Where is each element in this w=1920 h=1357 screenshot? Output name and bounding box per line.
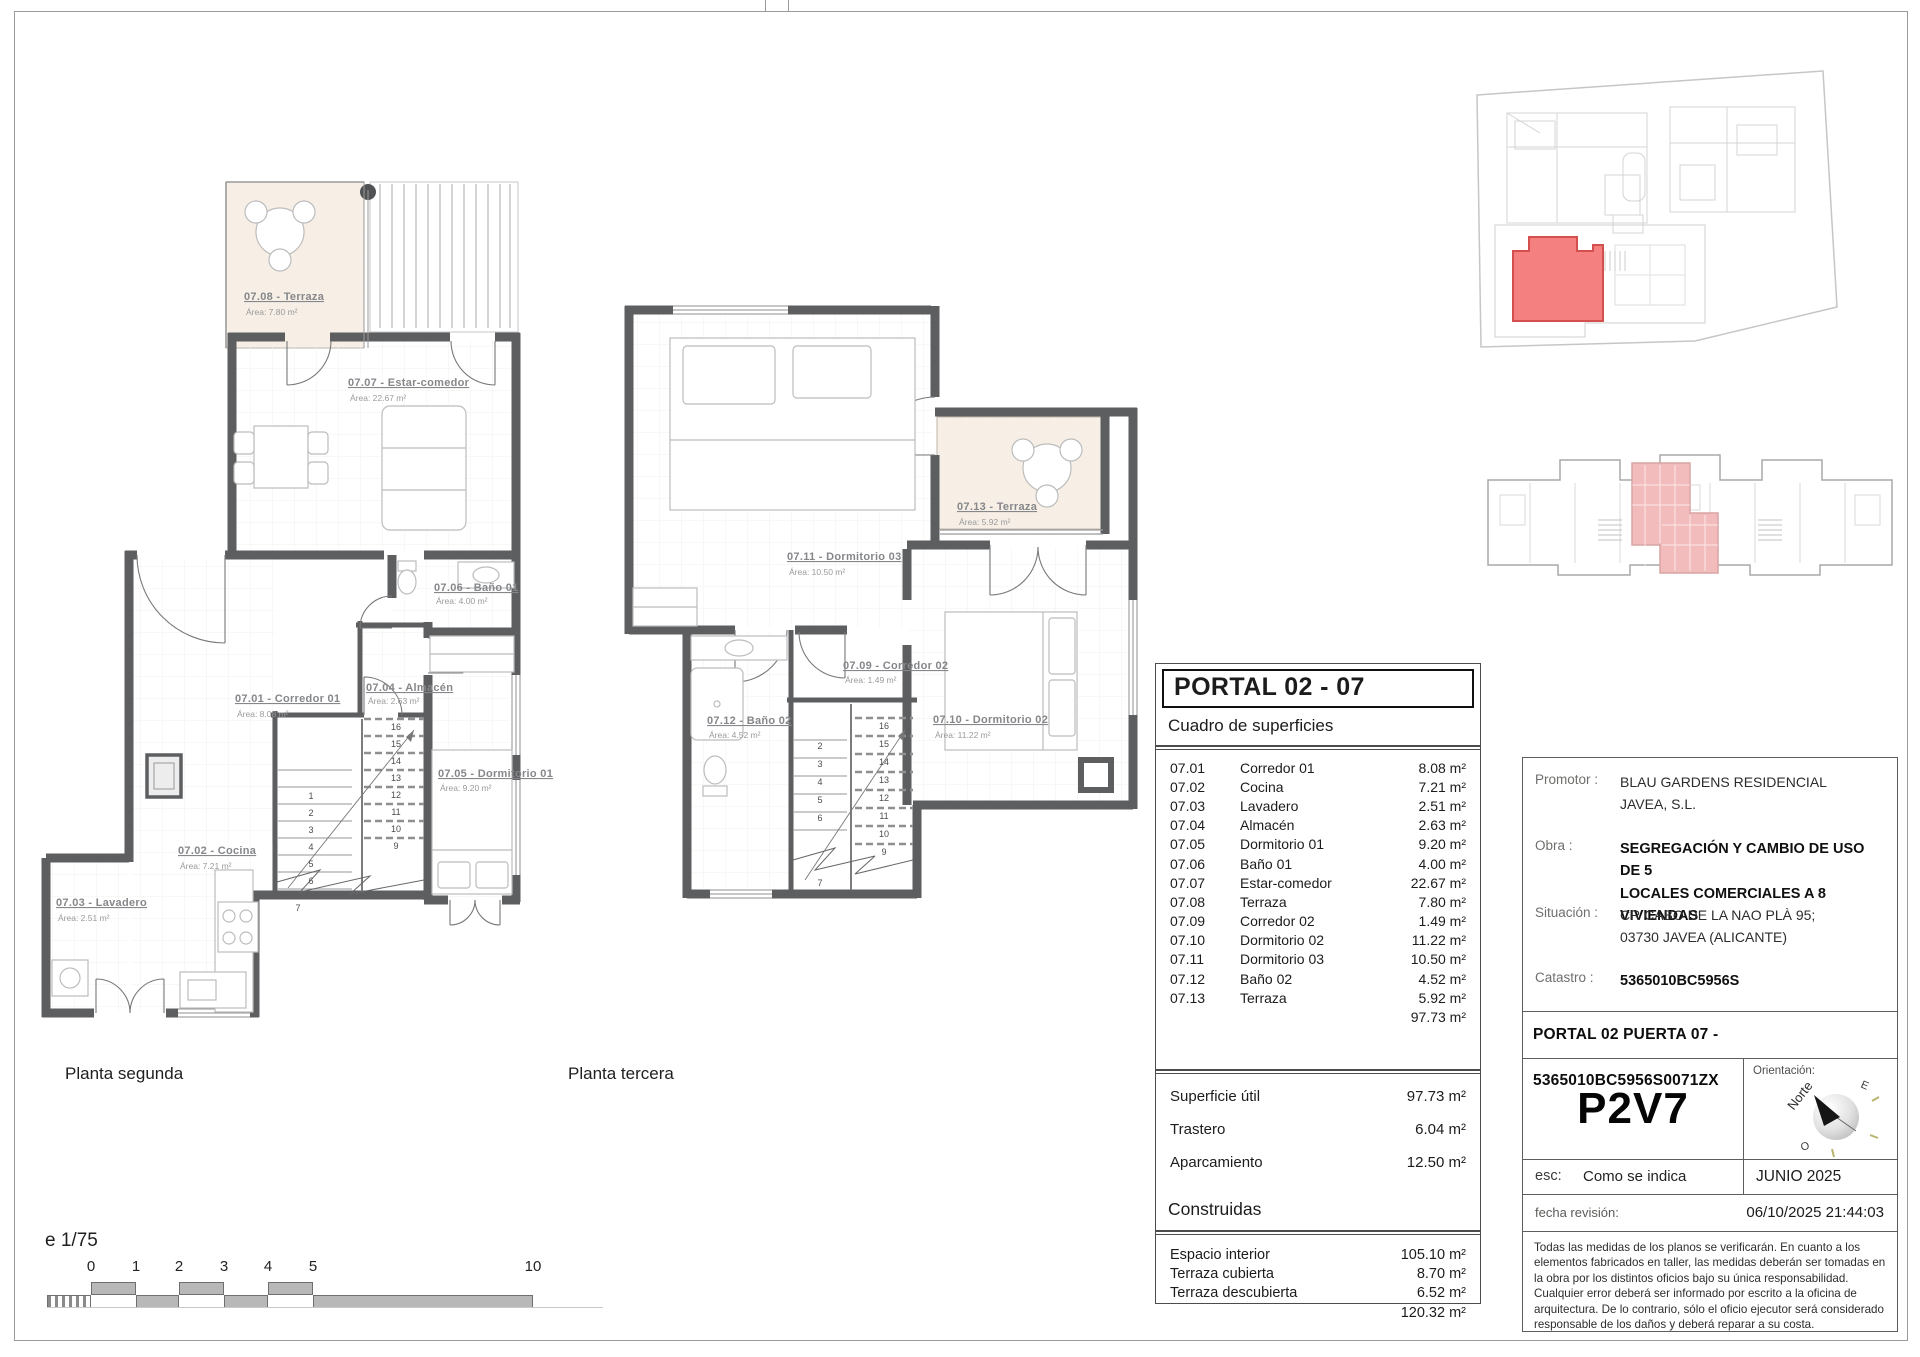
row-value: 5.92 m² <box>1378 990 1466 1006</box>
row-code: 07.07 <box>1170 875 1240 891</box>
scale-segment <box>268 1282 313 1295</box>
stair-number: 1 <box>308 791 313 801</box>
stair-number: 9 <box>881 847 886 857</box>
room-label: 07.13 - Terraza <box>957 501 1038 513</box>
room-label: 07.08 - Terraza <box>244 291 325 303</box>
surfaces-rows: 07.01Corredor 018.08 m² 07.02Cocina7.21 … <box>1156 750 1480 1007</box>
esc-label: esc: <box>1535 1168 1562 1184</box>
title-block: Promotor : BLAU GARDENS RESIDENCIAL JAVE… <box>1522 757 1898 1332</box>
pergola-louvers <box>370 182 518 332</box>
room-area: Área: 22.67 m² <box>350 393 406 403</box>
portal-reference: PORTAL 02 PUERTA 07 - 5365010BC5956S0071… <box>1523 1011 1897 1058</box>
row-name: Estar-comedor <box>1240 875 1378 891</box>
row-value: 8.08 m² <box>1378 760 1466 776</box>
room-label: 07.05 - Dormitorio 01 <box>438 768 553 780</box>
stair-number: 4 <box>817 777 822 787</box>
stairs: 2 3 4 5 6 16 15 14 13 12 11 10 9 7 <box>793 718 913 888</box>
obra-value: SEGREGACIÓN Y CAMBIO DE USO DE 5 <box>1620 838 1887 883</box>
built-row: Terraza cubierta8.70 m² <box>1156 1265 1480 1284</box>
row-value: 4.00 m² <box>1378 856 1466 872</box>
revision-row: fecha revisión: 06/10/2025 21:44:03 <box>1523 1194 1897 1231</box>
scale-mark: 5 <box>303 1258 323 1275</box>
table-row: 07.06Baño 014.00 m² <box>1156 854 1480 873</box>
row-code: 07.08 <box>1170 894 1240 910</box>
row-name: Corredor 02 <box>1240 913 1378 929</box>
table-row: 07.04Almacén2.63 m² <box>1156 816 1480 835</box>
stair-number: 2 <box>817 741 822 751</box>
summary-row: Superficie útil97.73 m² <box>1156 1074 1480 1107</box>
room-label: 07.09 - Corredor 02 <box>843 660 948 672</box>
table-row: 07.10Dormitorio 0211.22 m² <box>1156 931 1480 950</box>
row-code: 07.02 <box>1170 779 1240 795</box>
room-area: Área: 8.08 m² <box>237 709 289 719</box>
room-area: Área: 9.20 m² <box>440 783 492 793</box>
row-code: 07.13 <box>1170 990 1240 1006</box>
scale-baseline <box>47 1307 603 1308</box>
row-code: 07.04 <box>1170 817 1240 833</box>
graphic-scale-bar: 0 1 2 3 4 5 10 <box>45 1258 625 1312</box>
stair-number: 5 <box>308 859 313 869</box>
stair-number: 9 <box>393 841 398 851</box>
row-value: 7.21 m² <box>1378 779 1466 795</box>
row-value: 9.20 m² <box>1378 836 1466 852</box>
row-name: Baño 02 <box>1240 971 1378 987</box>
summary-value: 6.04 m² <box>1415 1121 1466 1138</box>
built-value: 6.52 m² <box>1417 1285 1466 1301</box>
surfaces-subtitle: Cuadro de superficies <box>1168 716 1480 745</box>
revision-label: fecha revisión: <box>1535 1205 1619 1220</box>
stair-direction-line <box>805 730 905 880</box>
shaft <box>147 755 181 797</box>
kitchen-sink-unit <box>180 972 246 1008</box>
stair-break-line <box>793 848 913 874</box>
stair-number: 10 <box>391 824 401 834</box>
stair-number: 15 <box>879 739 889 749</box>
row-value: 2.51 m² <box>1378 798 1466 814</box>
catastro-value: 5365010BC5956S <box>1620 970 1887 992</box>
surfaces-table: PORTAL 02 - 07 Cuadro de superficies 07.… <box>1155 663 1481 1304</box>
row-name: Dormitorio 03 <box>1240 951 1378 967</box>
disclaimer-text: Todas las medidas de los planos se verif… <box>1523 1231 1897 1331</box>
room-area: Área: 4.00 m² <box>436 596 488 606</box>
scale-row: esc: Como se indica JUNIO 2025 <box>1523 1159 1897 1194</box>
row-code: 07.12 <box>1170 971 1240 987</box>
compass-cell: Orientación: Norte E O <box>1743 1059 1897 1159</box>
table-row: 07.07Estar-comedor22.67 m² <box>1156 873 1480 892</box>
room-label: 07.10 - Dormitorio 02 <box>933 714 1048 726</box>
floor-plan-planta-segunda: 1 2 3 4 5 6 16 15 14 13 12 11 10 9 7 <box>30 170 640 1070</box>
floor-plan-planta-tercera: 2 3 4 5 6 16 15 14 13 12 11 10 9 7 <box>615 300 1145 960</box>
plan-caption-planta-segunda: Planta segunda <box>65 1064 183 1084</box>
room-area: Área: 7.80 m² <box>246 307 298 317</box>
situacion-value: CR CABO DE LA NAO PLÀ 95; <box>1620 905 1887 927</box>
revision-value: 06/10/2025 21:44:03 <box>1746 1204 1884 1221</box>
surfaces-title: PORTAL 02 - 07 <box>1162 669 1474 708</box>
row-value: 1.49 m² <box>1378 913 1466 929</box>
table-row: 07.12Baño 024.52 m² <box>1156 969 1480 988</box>
stair-number: 12 <box>391 790 401 800</box>
row-name: Baño 01 <box>1240 856 1378 872</box>
stair-number: 4 <box>308 842 313 852</box>
unit-code-section: P2V7 Orientación: Norte E O <box>1523 1058 1897 1159</box>
stair-number: 11 <box>391 807 400 817</box>
built-name: Terraza cubierta <box>1170 1266 1274 1282</box>
built-row: Espacio interior105.10 m² <box>1156 1245 1480 1264</box>
dining-table <box>254 426 308 488</box>
table-row: 07.09Corredor 021.49 m² <box>1156 912 1480 931</box>
situacion-label: Situación : <box>1535 905 1598 920</box>
stair-number: 11 <box>879 811 888 821</box>
built-row: Terraza descubierta6.52 m² <box>1156 1284 1480 1303</box>
room-area: Área: 10.50 m² <box>789 567 845 577</box>
built-header: Construidas <box>1156 1173 1480 1230</box>
stair-number: 7 <box>295 903 300 913</box>
row-code: 07.05 <box>1170 836 1240 852</box>
stair-number: 7 <box>817 878 822 888</box>
plan-caption-planta-tercera: Planta tercera <box>568 1064 674 1084</box>
table-row: 07.08Terraza7.80 m² <box>1156 892 1480 911</box>
row-name: Terraza <box>1240 894 1378 910</box>
stair-number: 6 <box>308 876 313 886</box>
compass-west-label: O <box>1799 1140 1811 1154</box>
room-area: Área: 1.49 m² <box>845 675 897 685</box>
room-label: 07.03 - Lavadero <box>56 897 147 909</box>
row-name: Dormitorio 02 <box>1240 932 1378 948</box>
row-code: 07.11 <box>1170 951 1240 967</box>
row-code: 07.06 <box>1170 856 1240 872</box>
stair-number: 14 <box>879 757 889 767</box>
fold-mark <box>788 0 789 12</box>
row-name: Dormitorio 01 <box>1240 836 1378 852</box>
stair-number: 5 <box>817 795 822 805</box>
obra-label: Obra : <box>1535 838 1573 853</box>
row-value: 22.67 m² <box>1378 875 1466 891</box>
room-label: 07.01 - Corredor 01 <box>235 693 340 705</box>
stair-number: 16 <box>391 722 401 732</box>
scale-mark: 4 <box>258 1258 278 1275</box>
unit-code: P2V7 <box>1523 1059 1743 1159</box>
row-code: 07.09 <box>1170 913 1240 929</box>
room-area: Área: 2.63 m² <box>368 696 420 706</box>
room-area: Área: 11.22 m² <box>935 730 991 740</box>
duct <box>1081 760 1111 790</box>
scale-note: e 1/75 <box>45 1230 98 1252</box>
summary-row: Trastero6.04 m² <box>1156 1107 1480 1140</box>
building-key-plan <box>1480 425 1900 610</box>
table-row: 07.13Terraza5.92 m² <box>1156 988 1480 1007</box>
row-code: 07.03 <box>1170 798 1240 814</box>
row-code: 07.10 <box>1170 932 1240 948</box>
row-value: 2.63 m² <box>1378 817 1466 833</box>
fold-mark <box>765 0 766 12</box>
promotor-label: Promotor : <box>1535 772 1598 787</box>
promotor-value: JAVEA, S.L. <box>1620 794 1887 816</box>
scale-mark: 1 <box>126 1258 146 1275</box>
stair-number: 10 <box>879 829 889 839</box>
stair-number: 13 <box>391 773 401 783</box>
summary-value: 97.73 m² <box>1407 1088 1466 1105</box>
sofa <box>382 406 466 530</box>
summary-name: Aparcamiento <box>1170 1154 1263 1171</box>
stair-number: 12 <box>879 793 889 803</box>
row-value: 10.50 m² <box>1378 951 1466 967</box>
room-area: Área: 2.51 m² <box>58 913 110 923</box>
room-label: 07.11 - Dormitorio 03 <box>787 551 902 563</box>
table-row: 07.02Cocina7.21 m² <box>1156 777 1480 796</box>
room-label: 07.04 - Almacén <box>366 682 453 694</box>
hob <box>218 902 258 952</box>
room-area: Área: 4.52 m² <box>709 730 761 740</box>
useful-total: 97.73 m² <box>1156 1007 1480 1027</box>
row-name: Almacén <box>1240 817 1378 833</box>
summary-name: Superficie útil <box>1170 1088 1260 1105</box>
scale-mark: 0 <box>81 1258 101 1275</box>
scale-mark: 2 <box>169 1258 189 1275</box>
room-area: Área: 5.92 m² <box>959 517 1011 527</box>
built-value: 8.70 m² <box>1417 1266 1466 1282</box>
compass-icon: Norte E O <box>1744 1059 1899 1159</box>
stair-number: 6 <box>817 813 822 823</box>
esc-value: Como se indica <box>1583 1168 1686 1185</box>
summary-value: 12.50 m² <box>1407 1154 1466 1171</box>
scale-segment <box>91 1282 136 1295</box>
row-value: 11.22 m² <box>1378 932 1466 948</box>
row-name: Cocina <box>1240 779 1378 795</box>
stair-number: 16 <box>879 721 889 731</box>
row-name: Corredor 01 <box>1240 760 1378 776</box>
summary-row: Aparcamiento12.50 m² <box>1156 1140 1480 1173</box>
promotor-value: BLAU GARDENS RESIDENCIAL <box>1620 772 1887 794</box>
row-name: Terraza <box>1240 990 1378 1006</box>
stair-number: 14 <box>391 756 401 766</box>
room-label: 07.07 - Estar-comedor <box>348 377 470 389</box>
row-value: 4.52 m² <box>1378 971 1466 987</box>
built-rows: Espacio interior105.10 m² Terraza cubier… <box>1156 1235 1480 1303</box>
stair-number: 2 <box>308 808 313 818</box>
date-value: JUNIO 2025 <box>1743 1160 1897 1194</box>
catastro-label: Catastro : <box>1535 970 1594 985</box>
stair-number: 3 <box>308 825 313 835</box>
room-label: 07.02 - Cocina <box>178 845 257 857</box>
table-row: 07.11Dormitorio 0310.50 m² <box>1156 950 1480 969</box>
summary-name: Trastero <box>1170 1121 1225 1138</box>
situacion-value: 03730 JAVEA (ALICANTE) <box>1620 927 1887 949</box>
table-row: 07.03Lavadero2.51 m² <box>1156 796 1480 815</box>
stair-number: 13 <box>879 775 889 785</box>
site-key-plan <box>1455 55 1855 365</box>
built-value: 105.10 m² <box>1401 1247 1466 1263</box>
compass-east-label: E <box>1859 1079 1871 1093</box>
table-row: 07.05Dormitorio 019.20 m² <box>1156 835 1480 854</box>
room-label: 07.12 - Baño 02 <box>707 715 792 727</box>
scale-mark: 10 <box>523 1258 543 1275</box>
stairs: 1 2 3 4 5 6 16 15 14 13 12 11 10 9 7 <box>277 719 424 913</box>
row-value: 7.80 m² <box>1378 894 1466 910</box>
scale-segment <box>179 1282 224 1295</box>
stair-number: 3 <box>817 759 822 769</box>
row-name: Lavadero <box>1240 798 1378 814</box>
built-total: 120.32 m² <box>1156 1303 1480 1323</box>
washer <box>52 960 88 996</box>
row-code: 07.01 <box>1170 760 1240 776</box>
built-name: Espacio interior <box>1170 1247 1270 1263</box>
scale-mark: 3 <box>214 1258 234 1275</box>
stair-number: 15 <box>391 739 401 749</box>
wc <box>704 756 726 784</box>
drawing-sheet: 1 2 3 4 5 6 16 15 14 13 12 11 10 9 7 <box>0 0 1920 1357</box>
table-row: 07.01Corredor 018.08 m² <box>1156 758 1480 777</box>
room-area: Área: 7.21 m² <box>180 861 232 871</box>
built-name: Terraza descubierta <box>1170 1285 1297 1301</box>
room-label: 07.06 - Baño 01 <box>434 582 519 594</box>
